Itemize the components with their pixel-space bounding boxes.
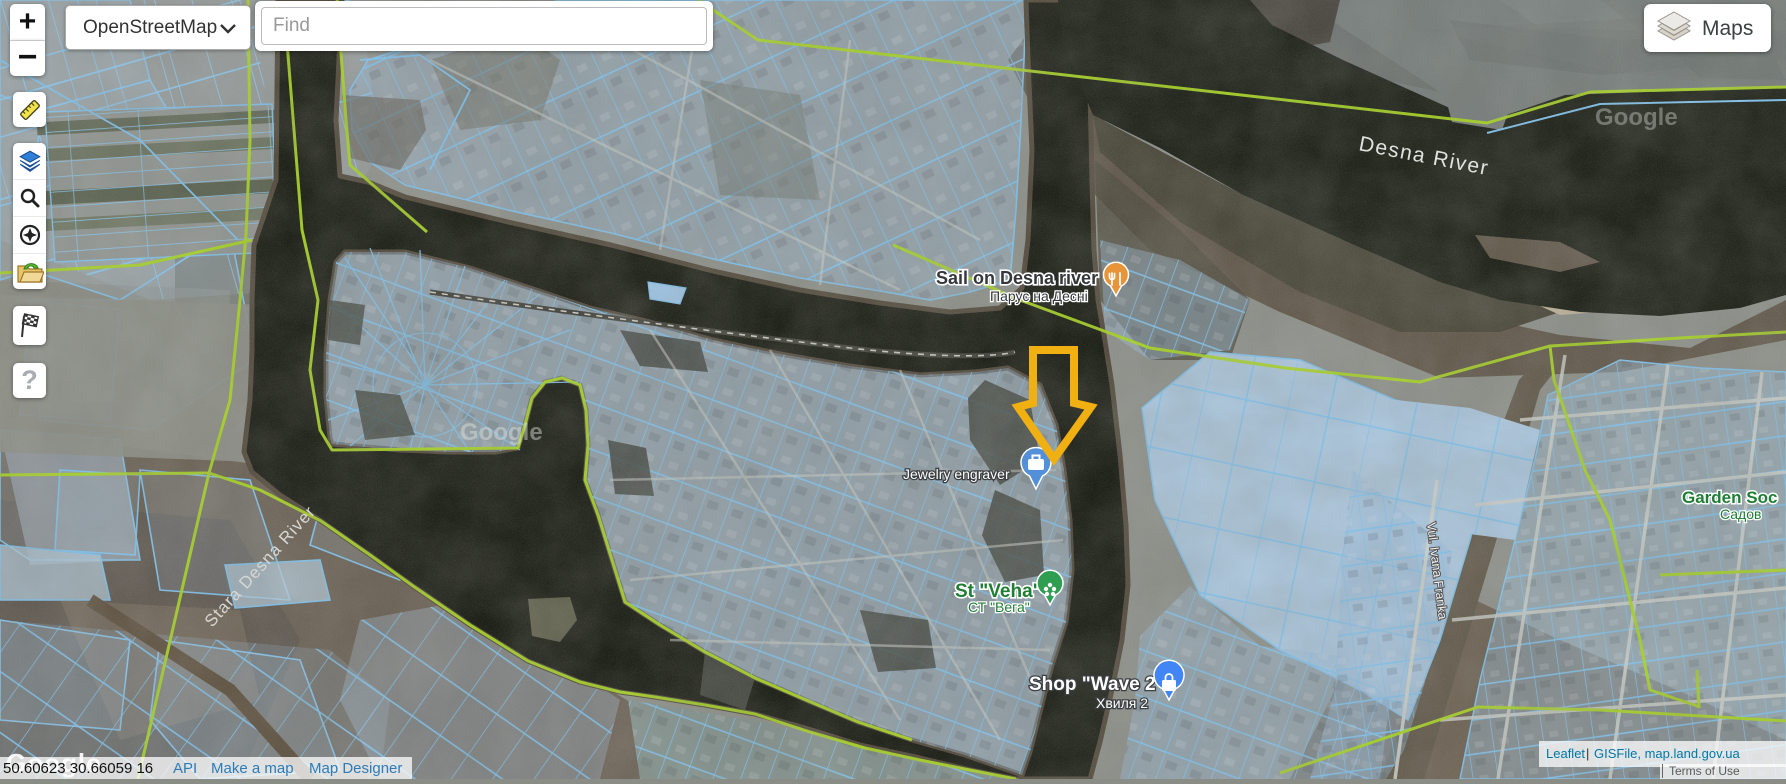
- svg-text:Garden Soc: Garden Soc: [1682, 488, 1777, 507]
- svg-text:Jewelry engraver: Jewelry engraver: [903, 466, 1010, 482]
- svg-text:Google: Google: [1595, 104, 1678, 131]
- svg-text:Shop "Wave 2": Shop "Wave 2": [1029, 674, 1165, 695]
- svg-text:СТ "Вега": СТ "Вега": [968, 599, 1030, 615]
- svg-text:Садов: Садов: [1720, 506, 1761, 522]
- svg-text:Google: Google: [460, 419, 543, 446]
- svg-text:Sail on Desna river: Sail on Desna river: [936, 268, 1098, 288]
- svg-text:Хвиля 2: Хвиля 2: [1096, 695, 1148, 711]
- svg-text:Парус на Десні: Парус на Десні: [990, 288, 1088, 304]
